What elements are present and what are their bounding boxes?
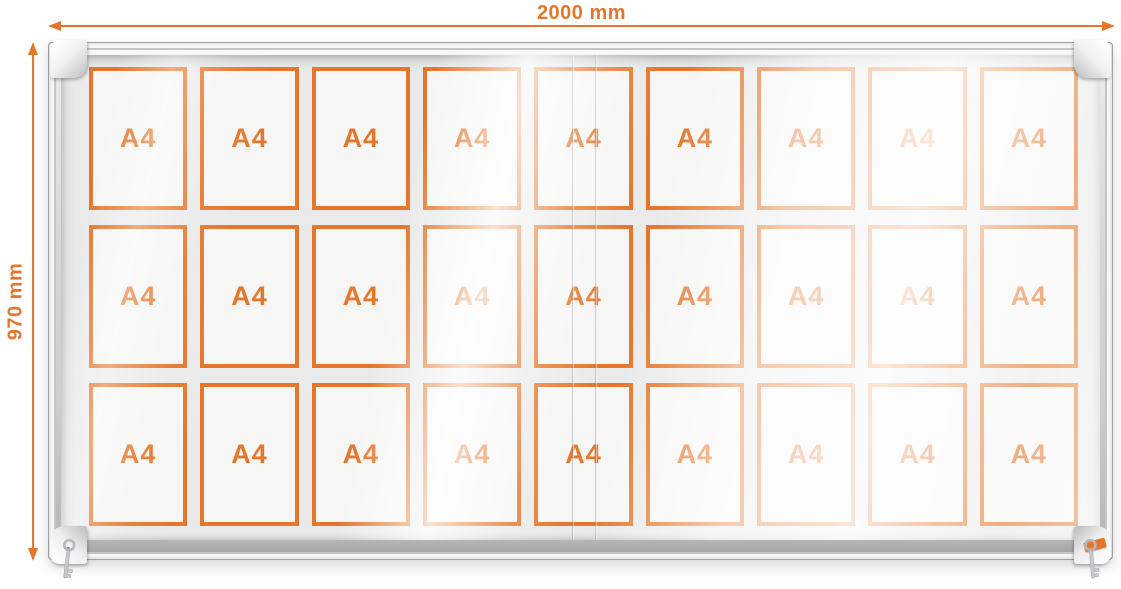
a4-slot: A4 <box>980 383 1078 526</box>
a4-grid: A4A4A4A4A4A4A4A4A4A4A4A4A4A4A4A4A4A4A4A4… <box>61 55 1100 540</box>
a4-slot: A4 <box>757 225 855 368</box>
a4-slot: A4 <box>757 383 855 526</box>
a4-slot: A4 <box>200 225 298 368</box>
a4-slot: A4 <box>757 67 855 210</box>
a4-slot: A4 <box>534 383 632 526</box>
a4-slot: A4 <box>534 225 632 368</box>
height-dimension-labelwrap: 970 mm <box>2 42 30 560</box>
a4-slot: A4 <box>312 383 410 526</box>
a4-slot: A4 <box>646 67 744 210</box>
a4-slot-label: A4 <box>231 281 268 312</box>
height-dimension-label: 970 mm <box>5 262 28 340</box>
a4-slot-label: A4 <box>788 123 825 154</box>
a4-slot: A4 <box>868 67 966 210</box>
a4-slot-label: A4 <box>1011 123 1048 154</box>
corner-cap-top-right <box>1074 40 1111 78</box>
a4-slot-label: A4 <box>565 281 602 312</box>
a4-slot-label: A4 <box>454 281 491 312</box>
glass-panel: A4A4A4A4A4A4A4A4A4A4A4A4A4A4A4A4A4A4A4A4… <box>61 55 1100 540</box>
a4-slot: A4 <box>312 67 410 210</box>
a4-slot: A4 <box>423 383 521 526</box>
a4-slot: A4 <box>980 225 1078 368</box>
a4-slot-label: A4 <box>565 439 602 470</box>
a4-slot-label: A4 <box>1011 439 1048 470</box>
a4-slot: A4 <box>868 383 966 526</box>
a4-slot: A4 <box>534 67 632 210</box>
a4-slot-label: A4 <box>677 281 714 312</box>
a4-slot-label: A4 <box>565 123 602 154</box>
a4-slot-label: A4 <box>899 439 936 470</box>
a4-slot-label: A4 <box>343 281 380 312</box>
arrowhead-left-icon <box>48 21 61 31</box>
a4-slot-label: A4 <box>231 123 268 154</box>
a4-slot-label: A4 <box>677 439 714 470</box>
a4-slot-label: A4 <box>343 123 380 154</box>
a4-slot: A4 <box>980 67 1078 210</box>
a4-slot: A4 <box>312 225 410 368</box>
a4-slot-label: A4 <box>788 281 825 312</box>
height-dimension-arrow <box>32 44 34 559</box>
a4-slot: A4 <box>200 67 298 210</box>
width-dimension-arrow <box>50 25 1113 27</box>
display-case: A4A4A4A4A4A4A4A4A4A4A4A4A4A4A4A4A4A4A4A4… <box>48 42 1113 560</box>
a4-slot: A4 <box>200 383 298 526</box>
corner-cap-top-left <box>50 40 87 78</box>
a4-slot-label: A4 <box>343 439 380 470</box>
a4-slot-label: A4 <box>899 281 936 312</box>
arrowhead-right-icon <box>1102 21 1115 31</box>
a4-slot: A4 <box>423 225 521 368</box>
a4-slot-label: A4 <box>231 439 268 470</box>
a4-slot-label: A4 <box>454 439 491 470</box>
a4-slot-label: A4 <box>788 439 825 470</box>
a4-slot: A4 <box>89 383 187 526</box>
a4-slot-label: A4 <box>899 123 936 154</box>
a4-slot: A4 <box>646 383 744 526</box>
a4-slot-label: A4 <box>677 123 714 154</box>
width-dimension-label: 2000 mm <box>50 2 1113 25</box>
a4-slot-label: A4 <box>120 123 157 154</box>
glass-door-seam-left <box>572 55 573 540</box>
a4-slot-label: A4 <box>454 123 491 154</box>
a4-slot-label: A4 <box>1011 281 1048 312</box>
a4-slot: A4 <box>868 225 966 368</box>
a4-slot-label: A4 <box>120 439 157 470</box>
a4-slot: A4 <box>89 225 187 368</box>
a4-slot: A4 <box>89 67 187 210</box>
a4-slot: A4 <box>423 67 521 210</box>
a4-slot: A4 <box>646 225 744 368</box>
glass-door-seam-right <box>595 55 596 540</box>
a4-slot-label: A4 <box>120 281 157 312</box>
